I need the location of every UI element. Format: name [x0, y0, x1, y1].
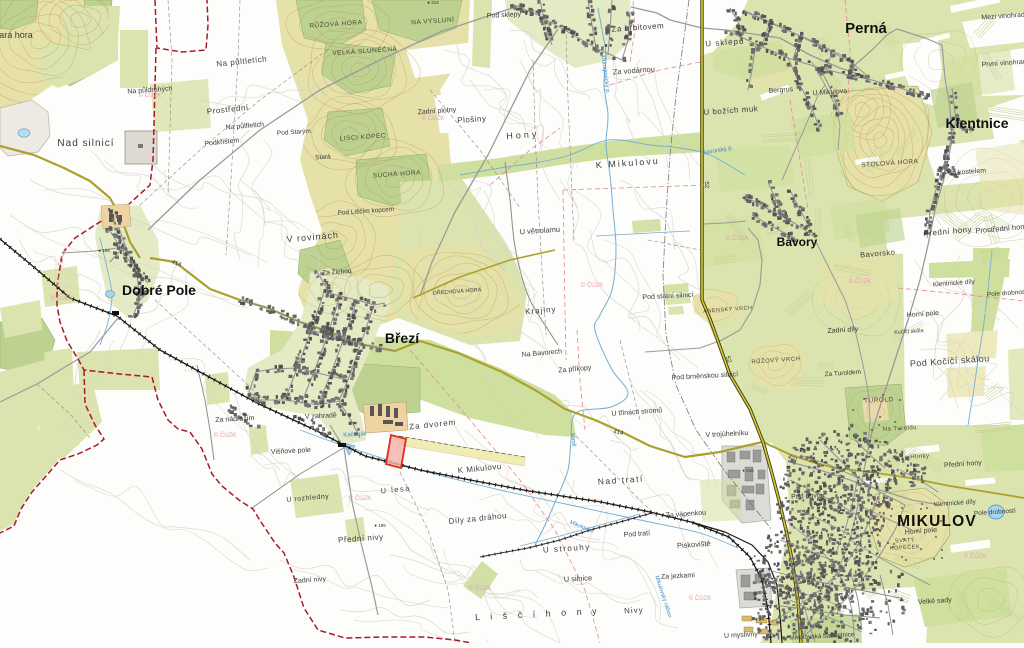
- svg-text:© ČÚZK: © ČÚZK: [726, 235, 748, 242]
- svg-text:© ČÚZK: © ČÚZK: [139, 92, 161, 99]
- svg-text:Perná: Perná: [845, 20, 887, 37]
- svg-text:© ČÚZK: © ČÚZK: [849, 278, 871, 285]
- svg-text:Stará: Stará: [315, 153, 331, 161]
- svg-text:Dobré Pole: Dobré Pole: [122, 282, 196, 298]
- svg-text:Nad silnicí: Nad silnicí: [57, 138, 114, 149]
- svg-text:● 188: ● 188: [98, 248, 110, 253]
- svg-text:52: 52: [703, 181, 709, 189]
- svg-text:© ČÚZK: © ČÚZK: [469, 585, 491, 592]
- svg-text:© ČÚZK: © ČÚZK: [214, 432, 236, 439]
- svg-text:Nivy: Nivy: [624, 605, 644, 615]
- svg-text:Bavory: Bavory: [777, 235, 818, 249]
- svg-text:Klentnice: Klentnice: [945, 115, 1008, 131]
- svg-text:● 216: ● 216: [742, 468, 754, 473]
- svg-text:ará hora: ará hora: [0, 30, 33, 40]
- svg-text:kanál: kanál: [569, 433, 576, 447]
- svg-text:SVATÝ: SVATÝ: [895, 536, 915, 544]
- svg-text:© ČÚZK: © ČÚZK: [422, 115, 444, 122]
- svg-text:● 195: ● 195: [374, 523, 386, 528]
- svg-text:© ČÚZK: © ČÚZK: [964, 553, 986, 560]
- svg-text:MIKULOV: MIKULOV: [897, 513, 977, 530]
- svg-text:Březí: Březí: [385, 330, 420, 346]
- svg-text:Kačenák: Kačenák: [343, 431, 368, 438]
- svg-text:© ČÚZK: © ČÚZK: [689, 595, 711, 602]
- svg-text:U silnice: U silnice: [563, 573, 592, 583]
- svg-text:© ČÚZK: © ČÚZK: [349, 495, 371, 502]
- svg-text:© ČÚZK: © ČÚZK: [581, 282, 603, 289]
- svg-text:● 214: ● 214: [427, 0, 439, 5]
- svg-text:Hlinky: Hlinky: [910, 453, 930, 460]
- svg-text:© ČÚZK: © ČÚZK: [51, 295, 73, 302]
